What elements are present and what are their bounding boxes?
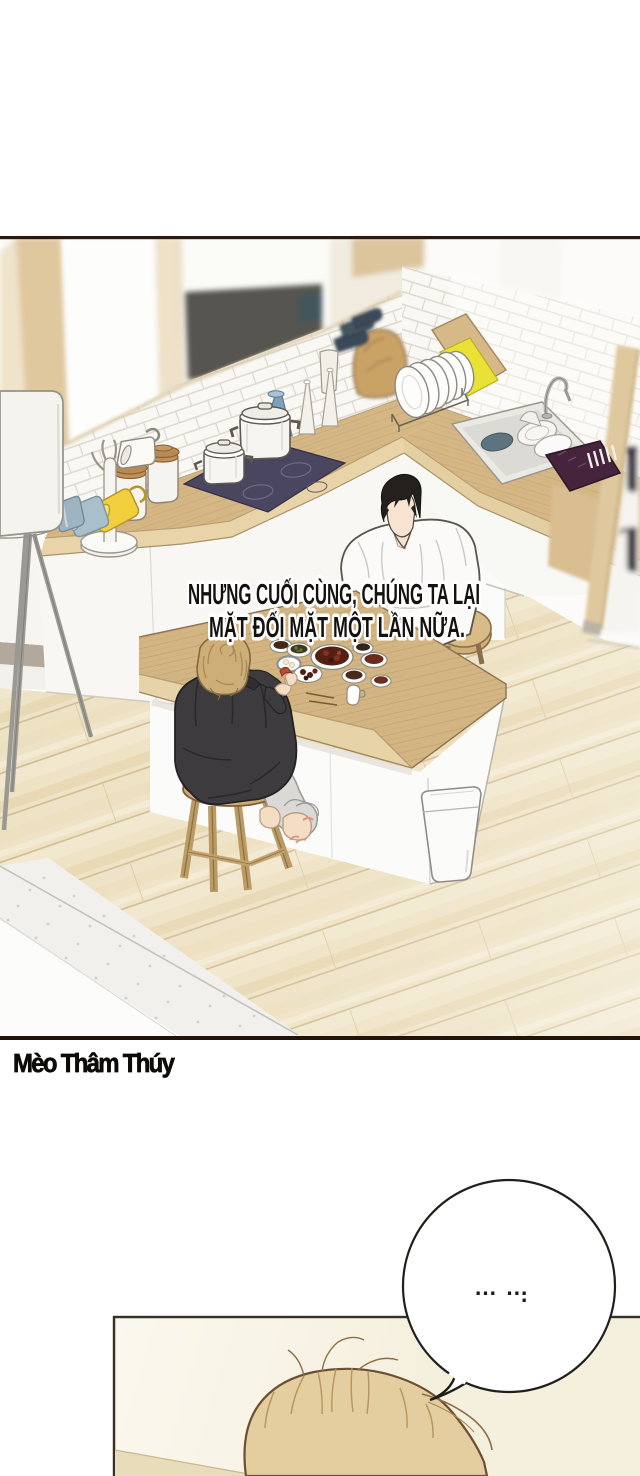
svg-text:.: . (521, 1281, 527, 1307)
svg-text:Mèo Thâm Thúy: Mèo Thâm Thúy (13, 1049, 175, 1078)
svg-text:NHƯNG CUỐI CÙNG, CHÚNG TA LẠI: NHƯNG CUỐI CÙNG, CHÚNG TA LẠI (188, 577, 480, 611)
svg-text:MẶT ĐỐI MẶT MỘT LẦN NỮA.: MẶT ĐỐI MẶT MỘT LẦN NỮA. (209, 610, 465, 644)
